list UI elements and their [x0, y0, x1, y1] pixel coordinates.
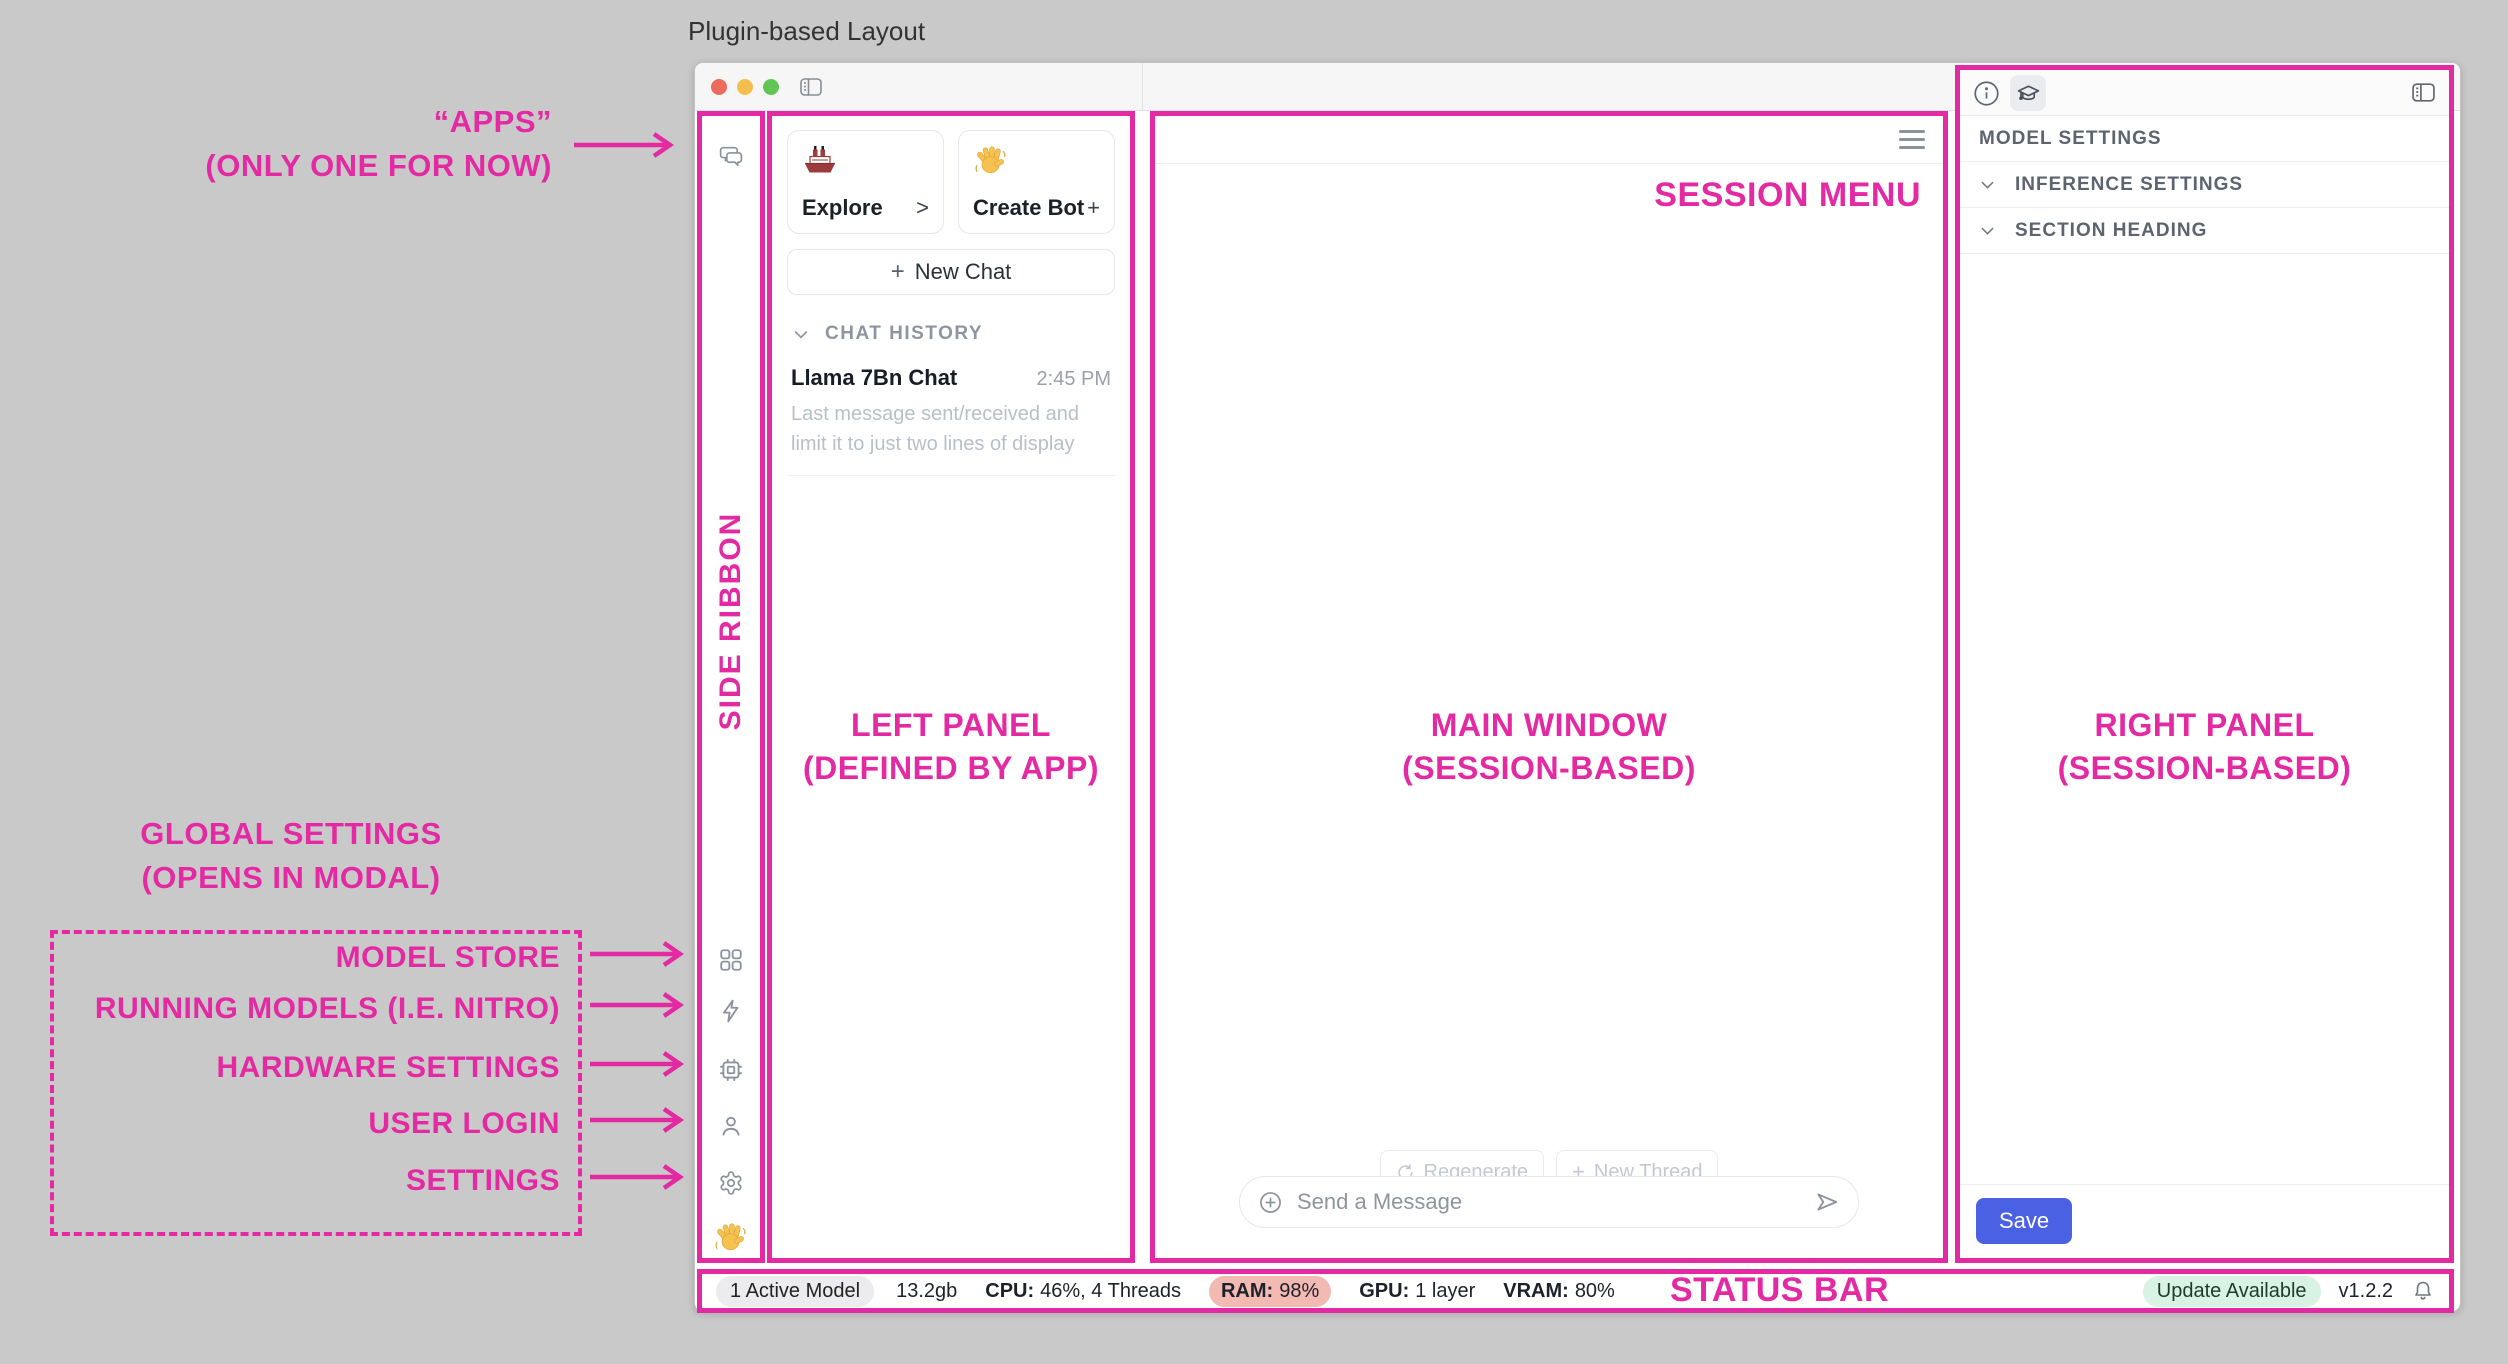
right-sidebar-toggle-icon[interactable] — [2411, 81, 2436, 104]
graduation-cap-icon — [2016, 81, 2041, 106]
chevron-down-icon — [1978, 175, 1997, 194]
app-window: SIDE RIBBON — [694, 62, 2461, 1312]
running-models-icon[interactable] — [718, 998, 744, 1024]
chat-history-item[interactable]: Llama 7Bn Chat 2:45 PM Last message sent… — [787, 365, 1115, 476]
annotation-status-bar: STATUS BAR — [1670, 1273, 1889, 1307]
model-store-icon[interactable] — [718, 947, 744, 973]
main-window-header — [1155, 116, 1943, 164]
chat-title: Llama 7Bn Chat — [791, 365, 957, 391]
titlebar-divider — [1142, 63, 1143, 111]
ship-emoji-icon — [802, 143, 929, 177]
attach-plus-icon[interactable] — [1258, 1190, 1283, 1215]
settings-gear-icon[interactable] — [718, 1170, 744, 1196]
left-panel: Explore > — [767, 111, 1135, 1263]
chat-app-icon[interactable] — [718, 142, 745, 169]
section-heading-label: SECTION HEADING — [2015, 220, 2207, 242]
gpu-usage: GPU:1 layer — [1359, 1280, 1475, 1303]
side-ribbon: SIDE RIBBON — [697, 111, 765, 1263]
zoom-window-button[interactable] — [763, 79, 779, 95]
new-chat-button[interactable]: + New Chat — [787, 249, 1115, 295]
status-bar: 1 Active Model 13.2gb CPU:46%, 4 Threads… — [697, 1269, 2454, 1313]
vram-usage: VRAM:80% — [1503, 1280, 1615, 1303]
new-chat-button-label: New Chat — [915, 259, 1012, 285]
apps-arrow-icon — [572, 130, 684, 160]
info-icon[interactable] — [1973, 80, 2000, 107]
create-bot-card-label: Create Bot — [973, 195, 1084, 221]
chat-history-header[interactable]: CHAT HISTORY — [787, 323, 1115, 345]
hamburger-menu-icon[interactable] — [1899, 130, 1925, 154]
create-bot-card-plus: + — [1087, 195, 1100, 221]
inference-settings-label: INFERENCE SETTINGS — [2015, 174, 2243, 196]
minimize-window-button[interactable] — [737, 79, 753, 95]
chevron-down-icon — [791, 324, 811, 344]
annotation-user-login: USER LOGIN — [368, 1104, 560, 1144]
annotation-hardware: HARDWARE SETTINGS — [216, 1048, 560, 1088]
save-button[interactable]: Save — [1976, 1198, 2072, 1244]
annotation-global-line2: (OPENS IN MODAL) — [130, 856, 452, 900]
annotation-side-ribbon: SIDE RIBBON — [714, 512, 748, 731]
create-bot-card[interactable]: Create Bot + — [958, 130, 1115, 234]
explore-card-chevron: > — [916, 195, 929, 221]
page-title: Plugin-based Layout — [688, 16, 925, 47]
wave-emoji-icon — [973, 143, 1100, 177]
cpu-usage: CPU:46%, 4 Threads — [985, 1280, 1181, 1303]
update-available-badge[interactable]: Update Available — [2143, 1276, 2321, 1307]
active-model-badge[interactable]: 1 Active Model — [716, 1276, 874, 1307]
memory-usage: 13.2gb — [896, 1280, 957, 1303]
bell-icon[interactable] — [2411, 1279, 2435, 1303]
user-login-arrow-icon — [588, 1105, 700, 1135]
annotation-global-settings: GLOBAL SETTINGS (OPENS IN MODAL) — [130, 812, 452, 900]
right-panel: MODEL SETTINGS INFERENCE SETTINGS SECTIO… — [1955, 65, 2454, 1263]
user-login-icon[interactable] — [718, 1113, 744, 1139]
right-panel-header — [1960, 70, 2449, 116]
message-input[interactable] — [1297, 1189, 1800, 1215]
explore-card[interactable]: Explore > — [787, 130, 944, 234]
main-window: SESSION MENU MAIN WINDOW (SESSION-BASED)… — [1150, 111, 1948, 1263]
sidebar-toggle-icon[interactable] — [799, 76, 823, 98]
hardware-arrow-icon — [588, 1049, 700, 1079]
annotation-session-menu: SESSION MENU — [1654, 176, 1921, 215]
inference-settings-row[interactable]: INFERENCE SETTINGS — [1960, 162, 2449, 208]
section-heading-row[interactable]: SECTION HEADING — [1960, 208, 2449, 254]
chat-preview: Last message sent/received and limit it … — [791, 399, 1111, 459]
annotation-apps-line1: “APPS” — [150, 100, 552, 144]
app-version: v1.2.2 — [2339, 1280, 2393, 1303]
annotation-model-store: MODEL STORE — [336, 938, 560, 978]
annotation-apps: “APPS” (ONLY ONE FOR NOW) — [150, 100, 552, 188]
chat-history-header-label: CHAT HISTORY — [825, 323, 983, 345]
plus-icon: + — [891, 258, 905, 286]
chevron-down-icon — [1978, 221, 1997, 240]
chat-time: 2:45 PM — [1037, 368, 1111, 391]
annotation-running-models: RUNNING MODELS (I.E. NITRO) — [95, 989, 560, 1029]
global-settings-dashed-box: MODEL STORE RUNNING MODELS (I.E. NITRO) … — [50, 930, 582, 1236]
annotation-left-panel: LEFT PANEL (DEFINED BY APP) — [772, 704, 1130, 790]
send-icon[interactable] — [1814, 1189, 1840, 1215]
explore-card-label: Explore — [802, 195, 883, 221]
annotation-settings: SETTINGS — [406, 1161, 560, 1201]
message-composer — [1239, 1176, 1859, 1228]
ram-usage-badge: RAM:98% — [1209, 1276, 1331, 1307]
hardware-settings-icon[interactable] — [718, 1057, 744, 1083]
annotation-apps-line2: (ONLY ONE FOR NOW) — [150, 144, 552, 188]
model-store-arrow-icon — [588, 939, 700, 969]
annotation-global-line1: GLOBAL SETTINGS — [130, 812, 452, 856]
right-panel-footer: Save — [1960, 1184, 2449, 1258]
annotation-main-window: MAIN WINDOW (SESSION-BASED) — [1155, 704, 1943, 790]
annotation-right-panel: RIGHT PANEL (SESSION-BASED) — [1960, 704, 2449, 790]
running-models-arrow-icon — [588, 990, 700, 1020]
assistant-tab-active[interactable] — [2010, 75, 2046, 111]
model-settings-label: MODEL SETTINGS — [1979, 128, 2162, 150]
close-window-button[interactable] — [711, 79, 727, 95]
model-settings-row: MODEL SETTINGS — [1960, 116, 2449, 162]
wave-hand-icon[interactable] — [714, 1220, 748, 1254]
settings-arrow-icon — [588, 1162, 700, 1192]
